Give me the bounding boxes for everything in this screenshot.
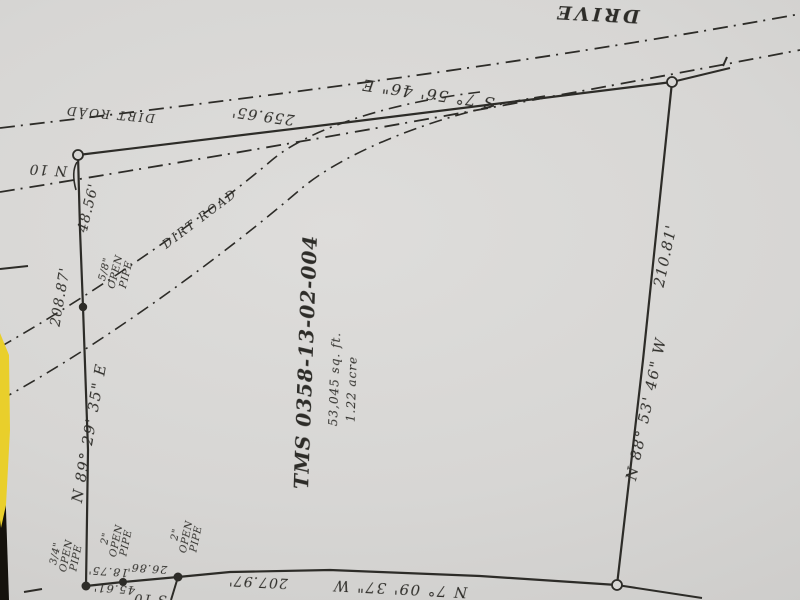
left-edge-tick (0, 266, 28, 269)
boundary-east (617, 82, 672, 585)
tie-distance-total: 45.61' (93, 582, 136, 597)
tie-distance-2: 26.86' (126, 561, 167, 575)
scanned-plat-document: DRIVE DIRT ROAD 259.65' S 7° 56' 46" E N… (0, 0, 800, 600)
corner-monument-nw (73, 150, 83, 160)
pipe-3-4-label: 3/4" OPEN PIPE (48, 537, 86, 576)
sw-edge-tick (24, 589, 42, 592)
nw-corner-bearing-partial: N 10 (28, 161, 67, 178)
street-name: DRIVE (554, 1, 640, 25)
nw-corner-leader (74, 162, 77, 190)
boundary-north-extension (672, 68, 730, 82)
corner-monument-se (612, 580, 622, 590)
sw-corner-bearing-partial: S 10 (133, 590, 167, 600)
parcel-area-sqft: 53,045 sq. ft. (327, 332, 343, 427)
dirt-road-line-upper (0, 92, 480, 347)
pipe-monument-sw (82, 582, 91, 591)
boundary-south-extension (617, 585, 702, 598)
parcel-area-acre: 1.22 acre (345, 356, 360, 423)
pipe-2b-label: 2" OPEN PIPE (168, 518, 206, 557)
tie-distance-1: 18.75' (87, 564, 128, 578)
corner-monument-ne (667, 77, 677, 87)
pipe-monument-s2 (174, 573, 183, 582)
south-distance: 207.97' (228, 572, 289, 590)
pipe-2a-label: 2" OPEN PIPE (98, 522, 136, 561)
pipe-monument-west (79, 303, 87, 311)
north-extension-tick (723, 57, 727, 66)
scanner-edge-yellow (0, 333, 10, 528)
